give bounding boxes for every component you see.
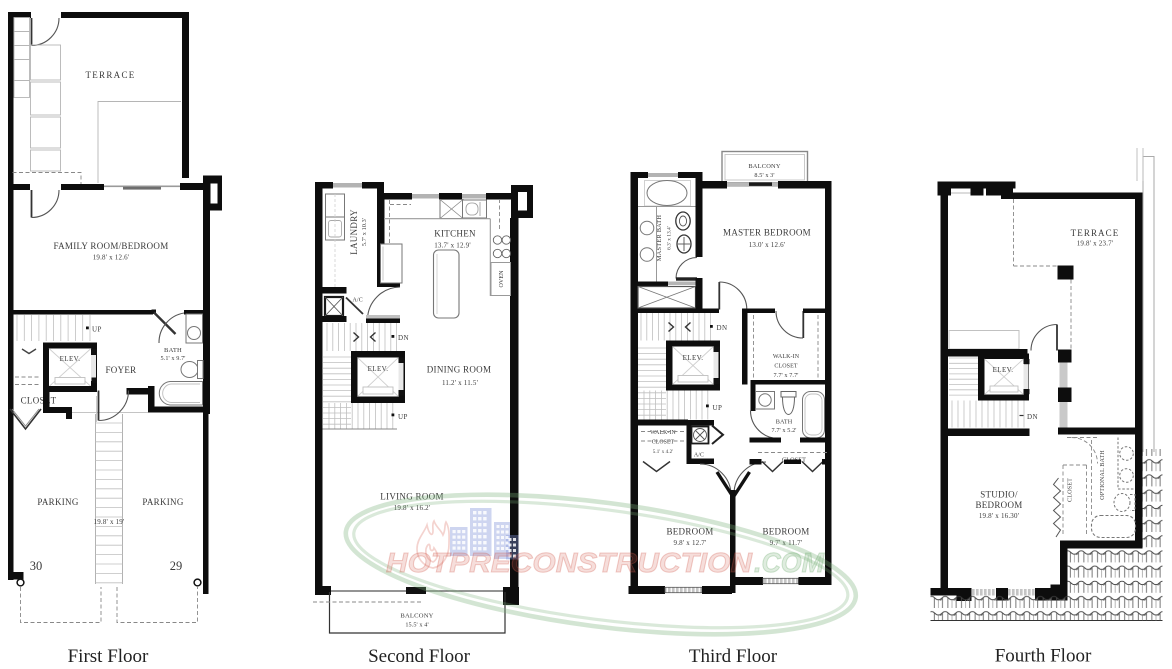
svg-text:WALK-IN: WALK-IN (650, 430, 676, 436)
svg-text:CLOSET: CLOSET (21, 396, 57, 406)
svg-text:LAUNDRY: LAUNDRY (349, 209, 359, 255)
svg-text:TERRACE: TERRACE (85, 70, 135, 80)
svg-text:5.1' x 4.2': 5.1' x 4.2' (653, 450, 673, 455)
svg-text:ELEV.: ELEV. (993, 366, 1014, 374)
svg-text:5.1' x 9.7': 5.1' x 9.7' (161, 355, 186, 362)
svg-text:MASTER BEDROOM: MASTER BEDROOM (723, 228, 811, 238)
svg-text:8.5' x 3': 8.5' x 3' (754, 172, 774, 179)
svg-text:30: 30 (30, 559, 43, 573)
svg-text:9.8' x 12.7': 9.8' x 12.7' (674, 539, 707, 547)
svg-text:CLOSET: CLOSET (652, 440, 675, 446)
svg-text:Fourth Floor: Fourth Floor (995, 646, 1092, 667)
svg-text:7.7' x 7.7': 7.7' x 7.7' (774, 372, 799, 379)
svg-text:WALK-IN: WALK-IN (773, 354, 800, 360)
svg-text:13.7' x 12.9': 13.7' x 12.9' (434, 242, 471, 250)
svg-text:A/C: A/C (353, 298, 363, 304)
svg-text:HOTPRECONSTRUCTION: HOTPRECONSTRUCTION (386, 547, 753, 578)
svg-text:UP: UP (398, 413, 408, 421)
svg-text:19.8' x 19': 19.8' x 19' (94, 518, 125, 526)
svg-text:19.8' x 12.6': 19.8' x 12.6' (93, 254, 130, 262)
svg-text:19.8' x 16.30': 19.8' x 16.30' (979, 512, 1019, 520)
svg-text:BATH: BATH (164, 347, 182, 354)
svg-text:CLOSET: CLOSET (1067, 478, 1074, 502)
svg-text:13.0' x 12.6': 13.0' x 12.6' (749, 241, 786, 249)
svg-text:PARKING: PARKING (37, 497, 78, 507)
svg-text:Second Floor: Second Floor (368, 646, 471, 667)
svg-text:DN: DN (717, 324, 728, 332)
svg-text:KITCHEN: KITCHEN (434, 229, 476, 239)
svg-text:.COM: .COM (754, 547, 825, 578)
svg-text:DN: DN (398, 334, 409, 342)
svg-text:DN: DN (1027, 413, 1038, 421)
svg-text:BEDROOM: BEDROOM (975, 500, 1022, 510)
svg-text:ELEV.: ELEV. (60, 355, 81, 363)
svg-text:DINING ROOM: DINING ROOM (427, 365, 492, 375)
svg-text:OVEN: OVEN (499, 270, 505, 288)
svg-text:PARKING: PARKING (142, 497, 183, 507)
svg-text:BEDROOM: BEDROOM (762, 527, 809, 537)
svg-text:UP: UP (92, 326, 102, 334)
svg-text:BATH: BATH (776, 419, 793, 426)
svg-text:ELEV.: ELEV. (683, 354, 704, 362)
svg-text:TERRACE: TERRACE (1071, 228, 1120, 238)
svg-text:BALCONY: BALCONY (400, 613, 433, 620)
svg-text:OPTIONAL BATH: OPTIONAL BATH (1099, 450, 1106, 500)
svg-text:UP: UP (713, 404, 723, 412)
svg-text:MASTER BATH: MASTER BATH (656, 215, 663, 262)
svg-text:15.5' x 4': 15.5' x 4' (405, 622, 428, 629)
svg-text:A/C: A/C (694, 453, 704, 459)
svg-text:19.8' x 23.7': 19.8' x 23.7' (1077, 240, 1114, 248)
svg-text:11.2' x 11.5': 11.2' x 11.5' (442, 379, 478, 387)
svg-text:29: 29 (170, 559, 183, 573)
svg-text:7.7' x 5.2': 7.7' x 5.2' (772, 427, 797, 434)
svg-text:ELEV.: ELEV. (368, 365, 389, 373)
svg-text:FAMILY ROOM/BEDROOM: FAMILY ROOM/BEDROOM (53, 241, 168, 251)
svg-text:5.7' x 10.3': 5.7' x 10.3' (361, 218, 368, 246)
svg-text:First Floor: First Floor (68, 646, 149, 667)
svg-text:BALCONY: BALCONY (748, 163, 780, 170)
svg-text:6.3' x 13.4': 6.3' x 13.4' (667, 226, 673, 250)
svg-text:Third Floor: Third Floor (689, 646, 778, 667)
svg-text:FOYER: FOYER (105, 365, 136, 375)
svg-text:CLOSET: CLOSET (774, 364, 798, 370)
svg-text:STUDIO/: STUDIO/ (980, 490, 1018, 500)
